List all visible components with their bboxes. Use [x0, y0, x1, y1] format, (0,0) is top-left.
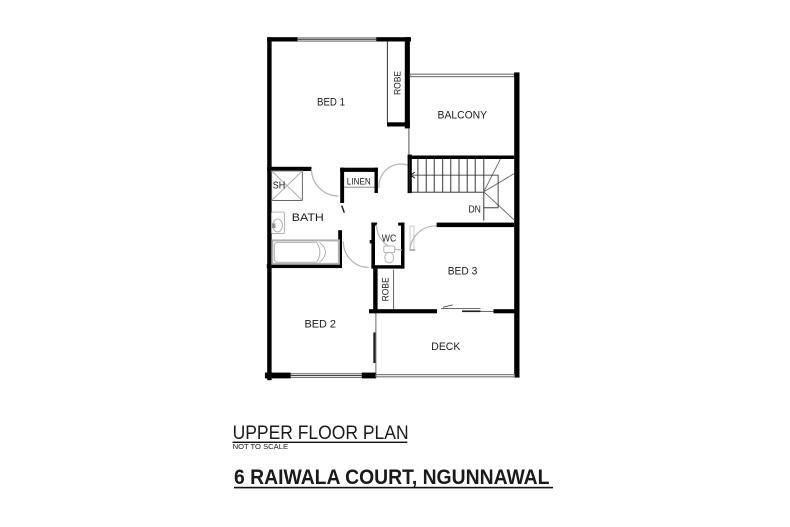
- svg-text:UPPER FLOOR PLAN: UPPER FLOOR PLAN: [233, 422, 409, 444]
- svg-text:BED 3: BED 3: [448, 266, 478, 278]
- svg-text:6 RAIWALA COURT, NGUNNAWAL: 6 RAIWALA COURT, NGUNNAWAL: [234, 465, 550, 489]
- svg-text:DECK: DECK: [431, 341, 461, 353]
- svg-text:NOT TO SCALE: NOT TO SCALE: [233, 444, 289, 451]
- svg-text:BATH: BATH: [292, 212, 324, 224]
- svg-text:LINEN: LINEN: [347, 176, 371, 187]
- svg-text:BED 1: BED 1: [317, 97, 345, 109]
- svg-text:BALCONY: BALCONY: [438, 110, 488, 122]
- svg-text:ROBE: ROBE: [380, 277, 391, 301]
- svg-text:ROBE: ROBE: [393, 71, 404, 95]
- svg-text:WC: WC: [382, 233, 397, 245]
- svg-text:DN: DN: [468, 205, 481, 216]
- svg-text:BED 2: BED 2: [304, 319, 336, 331]
- svg-text:SH: SH: [273, 181, 286, 192]
